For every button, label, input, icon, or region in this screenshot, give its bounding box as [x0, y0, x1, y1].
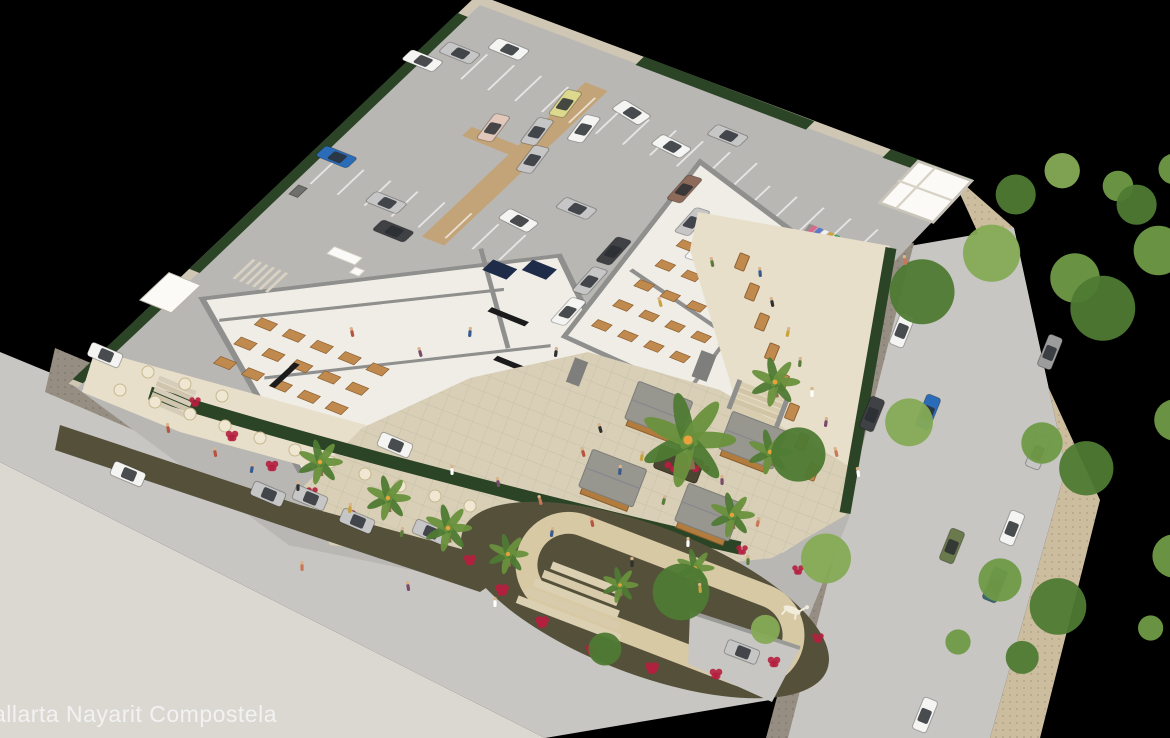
tree-canopy — [1030, 578, 1087, 635]
flower — [714, 673, 721, 680]
flower — [539, 620, 547, 628]
planter-flowers — [665, 462, 672, 469]
terrace-table — [289, 444, 301, 456]
person — [630, 557, 634, 567]
tree-canopy — [801, 533, 851, 583]
palm-fruit — [773, 380, 778, 385]
person — [296, 481, 300, 491]
tree-canopy — [1138, 615, 1163, 640]
person — [450, 465, 454, 475]
person — [300, 561, 304, 571]
tree-canopy — [1006, 641, 1039, 674]
tree-canopy — [1021, 422, 1062, 463]
person-body — [493, 600, 496, 607]
flower — [816, 637, 822, 643]
palm-fruit — [730, 513, 734, 517]
person-body — [810, 390, 813, 397]
flower — [270, 465, 277, 472]
tree-canopy — [1059, 441, 1113, 495]
tree-canopy — [1070, 276, 1135, 341]
tree-canopy — [945, 629, 970, 654]
terrace-table — [254, 432, 266, 444]
person-body — [300, 564, 303, 571]
flower — [468, 559, 475, 566]
terrace-table — [429, 490, 441, 502]
terrace-table — [114, 384, 126, 396]
person — [720, 475, 724, 485]
tree-canopy — [588, 632, 621, 665]
person — [493, 597, 496, 607]
person — [686, 537, 690, 547]
tree-canopy — [751, 615, 780, 644]
tree-canopy — [885, 398, 933, 446]
person-head — [493, 597, 496, 600]
terrace-table — [359, 468, 371, 480]
tree-canopy — [771, 427, 825, 481]
person — [810, 387, 814, 397]
terrace-table — [179, 378, 191, 390]
palm-fruit — [446, 526, 451, 531]
flower — [796, 569, 802, 575]
terrace-table — [464, 500, 476, 512]
tree-canopy — [963, 225, 1020, 282]
render-image: allarta Nayarit Compostela — [0, 0, 1170, 738]
palm-fruit — [386, 496, 390, 500]
person — [746, 555, 750, 565]
terrace-table — [219, 420, 231, 432]
flower — [230, 435, 237, 442]
flower — [740, 549, 746, 555]
person-body — [296, 484, 299, 491]
flower — [772, 661, 779, 668]
flower — [649, 666, 657, 674]
flower — [499, 588, 507, 596]
terrace-table — [184, 408, 196, 420]
palm-fruit — [618, 583, 622, 587]
flower — [193, 401, 199, 407]
palm-fruit — [506, 552, 510, 556]
person-body — [686, 540, 689, 547]
tree-canopy — [1045, 153, 1080, 188]
terrace-table — [142, 366, 154, 378]
person-body — [720, 478, 723, 485]
person-body — [630, 560, 633, 567]
terrace-table — [149, 396, 161, 408]
terrace-table — [216, 390, 228, 402]
tree-canopy — [978, 558, 1021, 601]
person-body — [746, 558, 749, 565]
caption-watermark: allarta Nayarit Compostela — [0, 701, 277, 728]
tree-canopy — [1117, 185, 1157, 225]
person-body — [450, 468, 453, 475]
plaza-aerial-render — [0, 0, 1170, 738]
palm-fruit — [318, 460, 322, 464]
palm-fruit — [683, 435, 692, 444]
tree-canopy — [890, 259, 955, 324]
tree-canopy — [996, 174, 1036, 214]
